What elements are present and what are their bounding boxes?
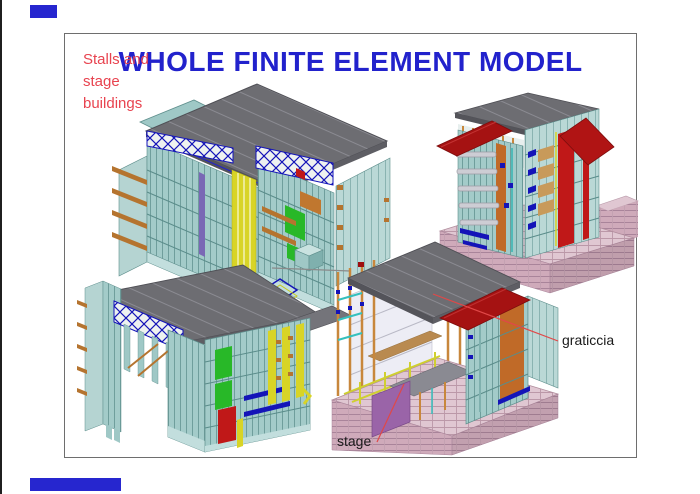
graticcia-label: graticcia: [562, 332, 614, 348]
note-line-1: Stalls and: [83, 49, 149, 71]
note-line-2: stage: [83, 71, 149, 93]
note-line-3: buildings: [83, 93, 149, 115]
figure-title: WHOLE FINITE ELEMENT MODEL: [64, 46, 637, 78]
page: WHOLE FINITE ELEMENT MODEL Stalls and st…: [0, 0, 700, 494]
stage-label: stage: [337, 433, 371, 449]
figure-side-note: Stalls and stage buildings: [83, 49, 149, 115]
